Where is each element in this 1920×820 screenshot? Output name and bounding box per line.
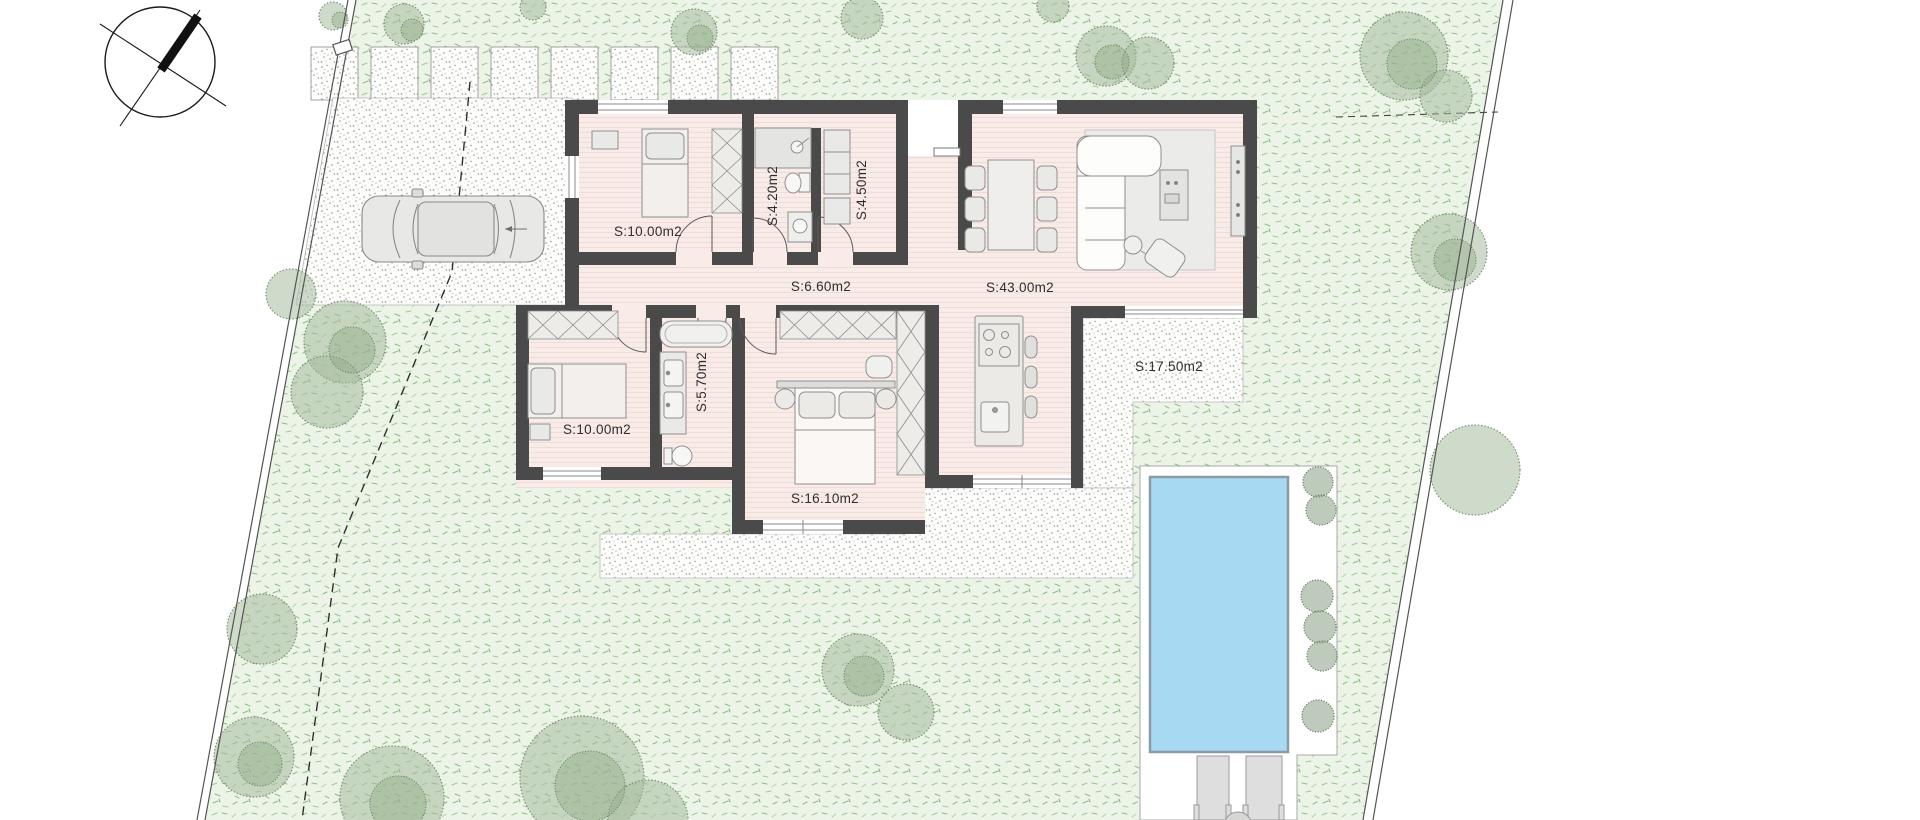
room-label-master: S:16.10m2 bbox=[791, 491, 859, 506]
room-label-bedroom-2: S:10.00m2 bbox=[563, 422, 631, 437]
dining-table-set bbox=[965, 160, 1057, 252]
kitchen-island bbox=[975, 316, 1023, 446]
double-sink bbox=[660, 352, 686, 434]
wardrobe bbox=[528, 311, 618, 339]
nightstand bbox=[876, 389, 896, 409]
nightstand bbox=[530, 424, 550, 440]
pouf bbox=[866, 356, 892, 378]
bathtub bbox=[660, 321, 732, 347]
room-label-bedroom-1: S:10.00m2 bbox=[614, 224, 682, 239]
swimming-pool bbox=[1150, 477, 1288, 752]
utility-counter bbox=[824, 130, 850, 224]
sink bbox=[788, 212, 812, 242]
entrance-door bbox=[934, 148, 960, 156]
room-label-bathroom-1: S:4.20m2 bbox=[765, 166, 780, 226]
bar-stools bbox=[1025, 336, 1037, 418]
toilet bbox=[785, 173, 810, 193]
car bbox=[362, 189, 544, 269]
site-plan-page: S:10.00m2 S:4.20m2 S:4.50m2 S:6.60m2 S:4… bbox=[0, 0, 1920, 820]
room-label-utility: S:4.50m2 bbox=[854, 160, 869, 220]
room-label-hallway: S:6.60m2 bbox=[791, 279, 851, 294]
room-label-terrace: S:17.50m2 bbox=[1135, 359, 1203, 374]
wardrobe bbox=[712, 129, 742, 213]
room-label-living: S:43.00m2 bbox=[986, 280, 1054, 295]
side-table bbox=[1124, 236, 1142, 254]
sideboard bbox=[1231, 146, 1245, 236]
room-label-bathroom-2: S:5.70m2 bbox=[694, 352, 709, 412]
bed-single bbox=[528, 364, 626, 418]
toilet bbox=[664, 446, 692, 466]
tv-unit bbox=[1160, 170, 1188, 220]
bed-single bbox=[642, 129, 688, 217]
site-plan-drawing: S:10.00m2 S:4.20m2 S:4.50m2 S:6.60m2 S:4… bbox=[0, 0, 1920, 820]
nightstand bbox=[775, 389, 795, 409]
shower bbox=[755, 128, 811, 168]
nightstand bbox=[592, 131, 618, 149]
